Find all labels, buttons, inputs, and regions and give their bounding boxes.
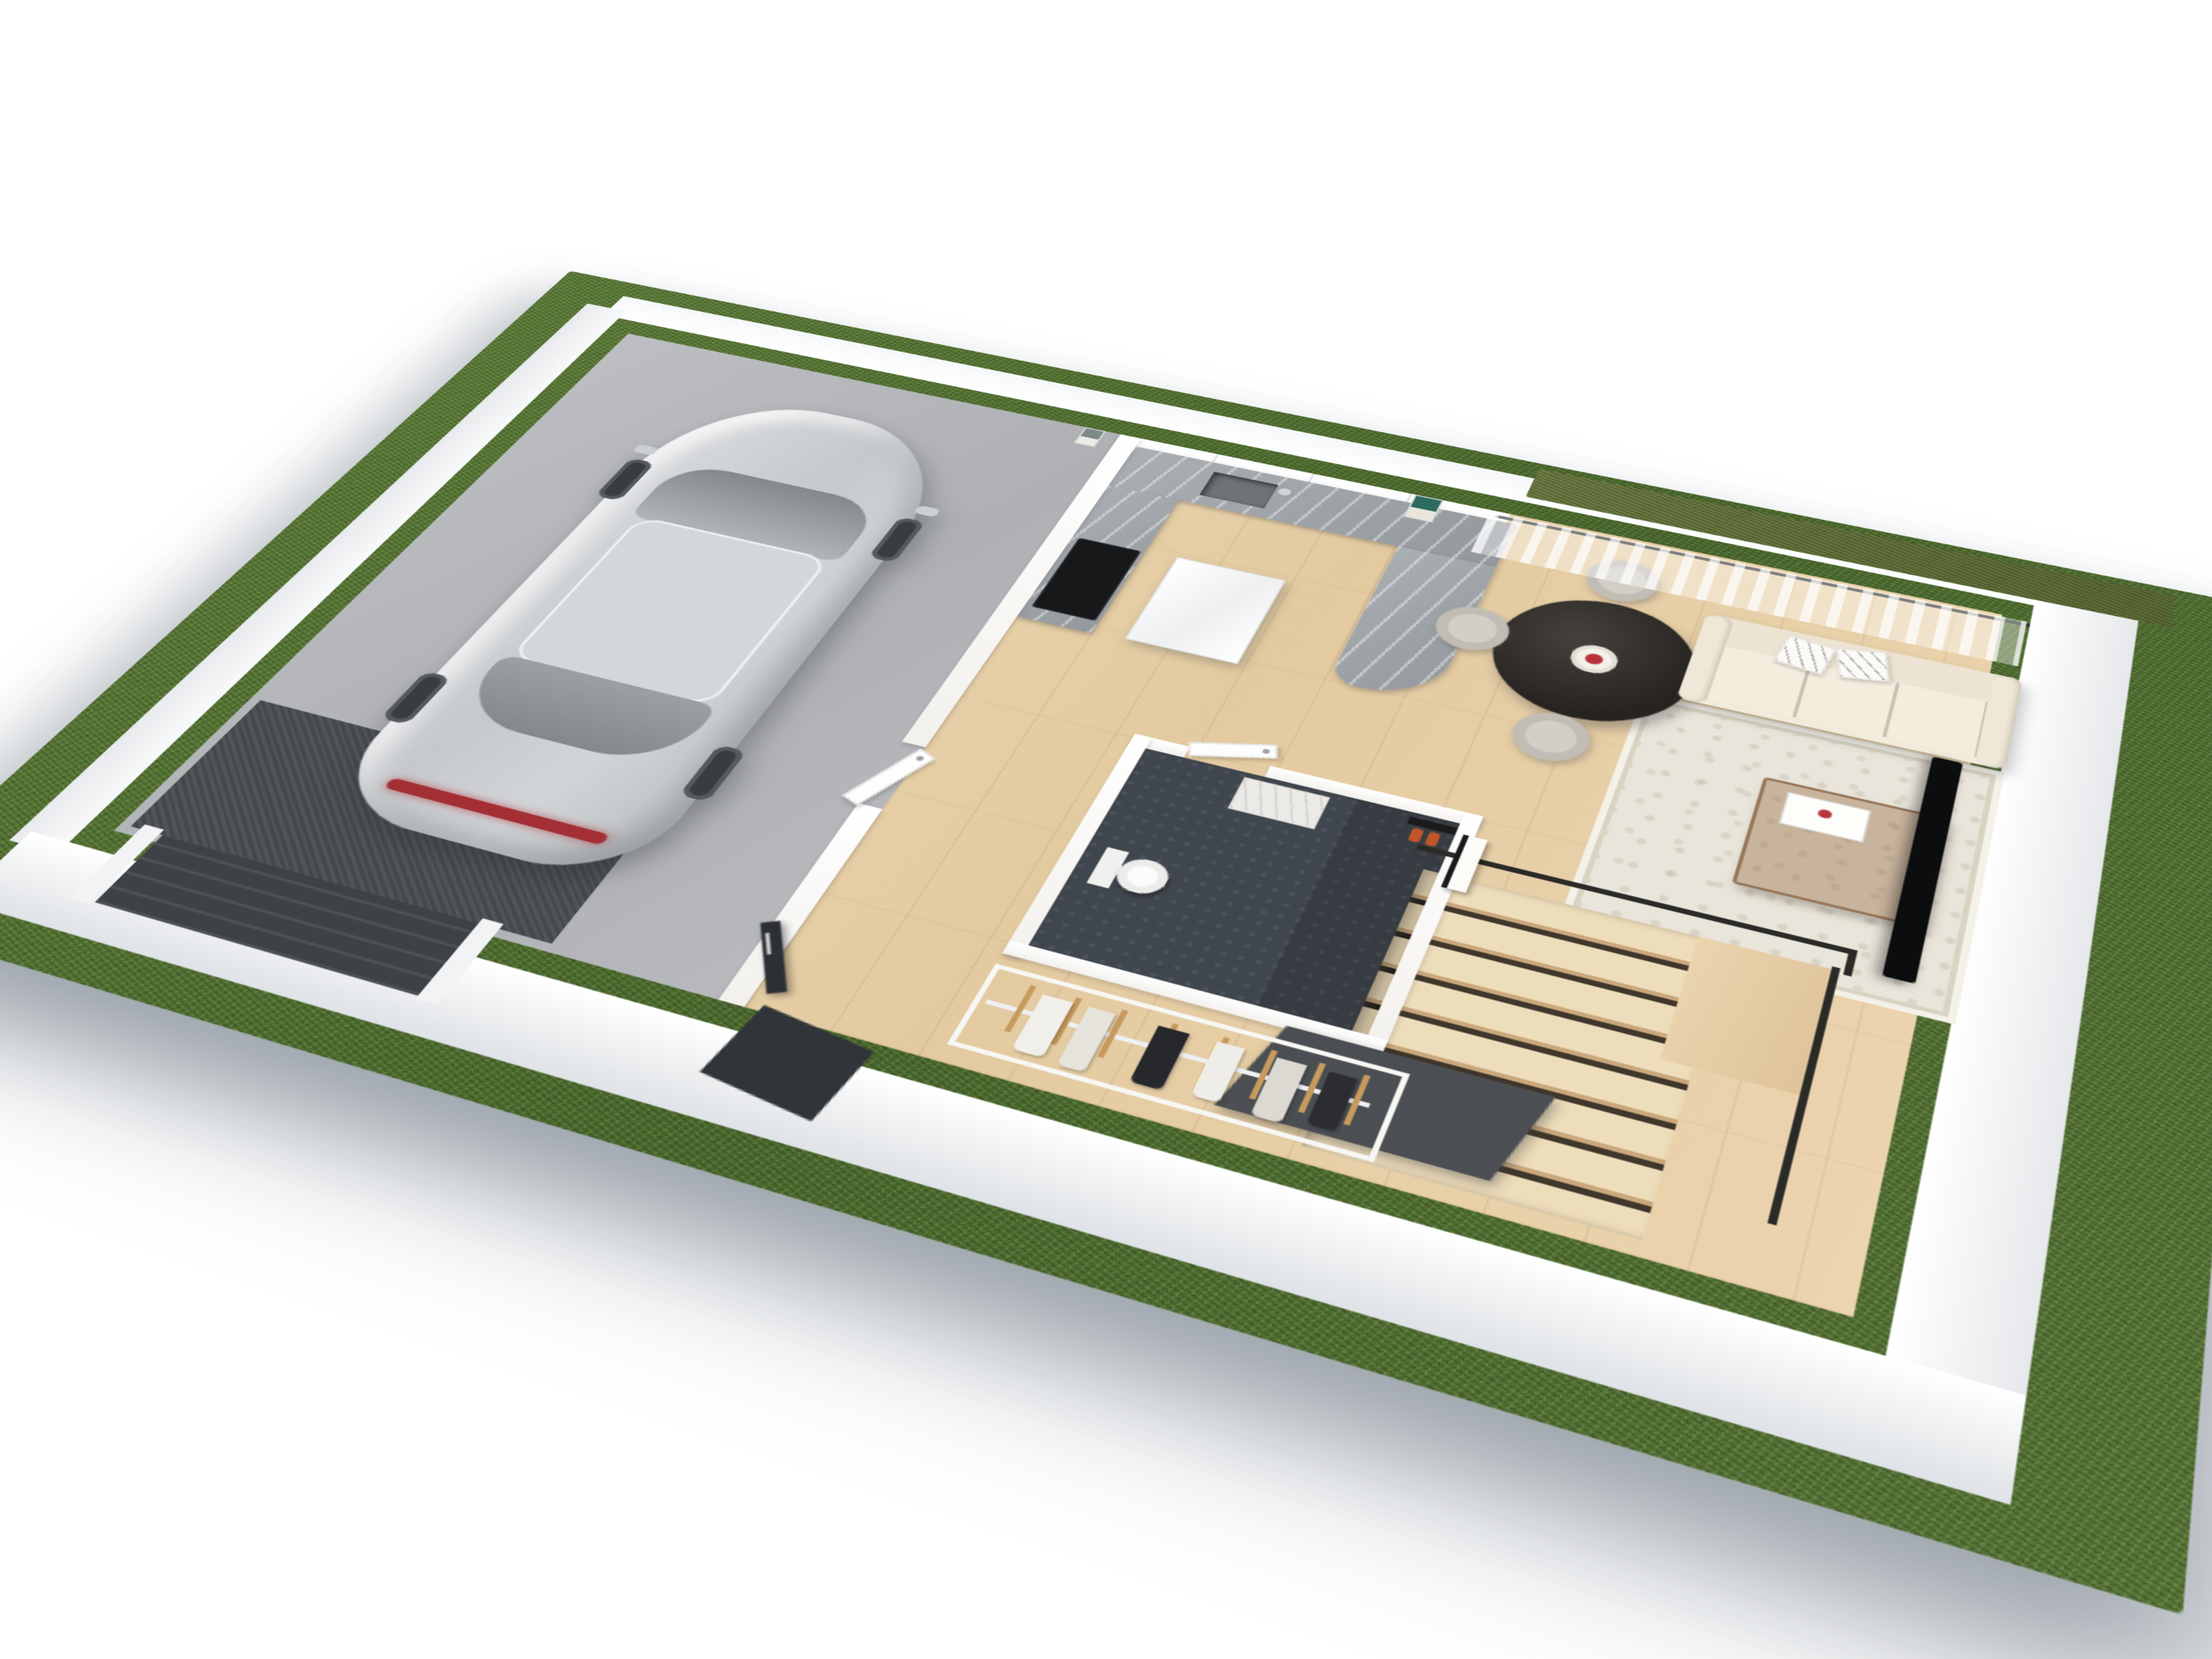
render-canvas (0, 0, 2212, 1659)
scale-stage (0, 0, 2212, 1659)
fridge (1125, 557, 1286, 664)
throw-pillow (1836, 648, 1890, 682)
house-floorplan (69, 318, 2034, 1355)
door-handle (1263, 749, 1270, 753)
front-door-handle (766, 933, 771, 955)
bathroom-door (1188, 742, 1277, 759)
door-handle (915, 755, 925, 762)
